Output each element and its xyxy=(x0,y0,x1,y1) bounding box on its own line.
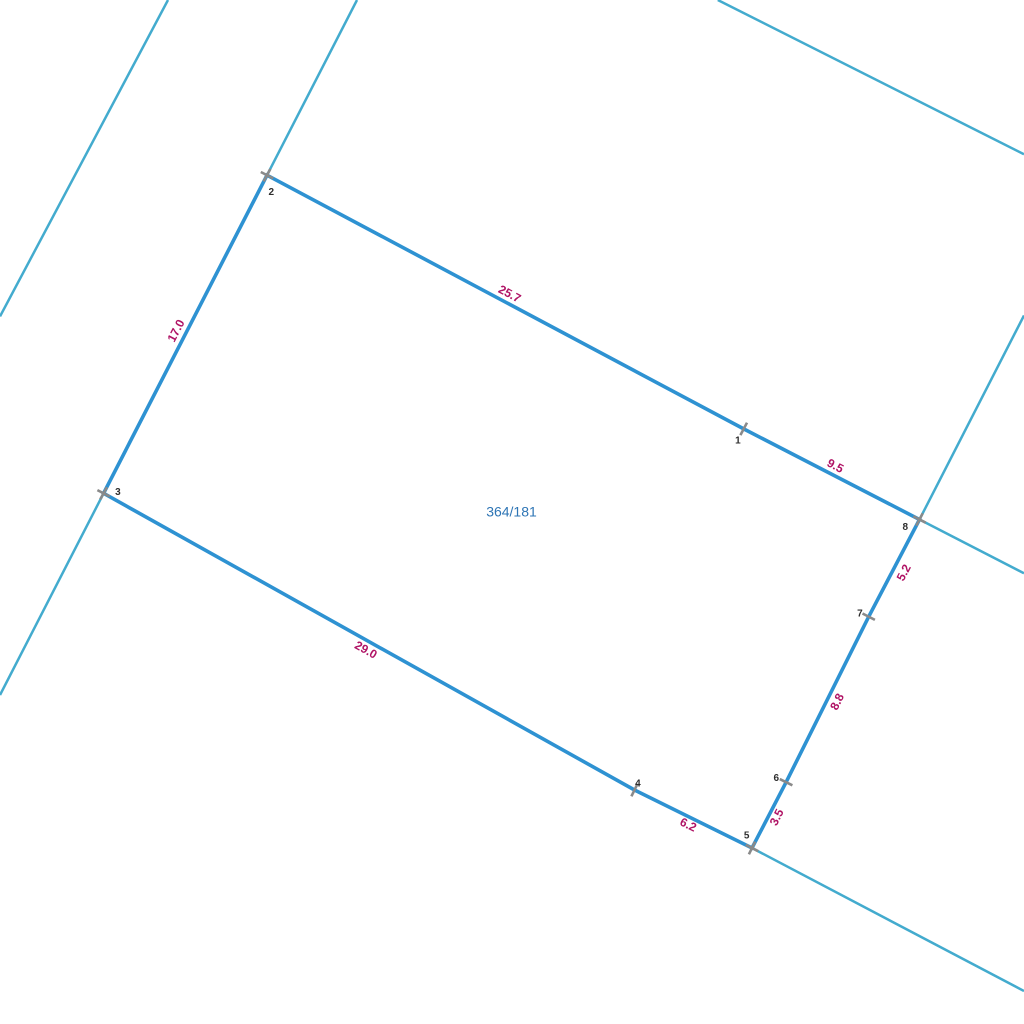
svg-text:8: 8 xyxy=(903,522,909,533)
svg-text:3: 3 xyxy=(115,487,121,498)
svg-text:5: 5 xyxy=(744,831,750,842)
svg-text:2: 2 xyxy=(269,187,275,198)
svg-text:6: 6 xyxy=(774,773,780,784)
svg-text:1: 1 xyxy=(735,436,741,447)
svg-text:364/181: 364/181 xyxy=(486,504,537,520)
svg-text:7: 7 xyxy=(857,609,863,620)
svg-text:4: 4 xyxy=(635,779,641,790)
